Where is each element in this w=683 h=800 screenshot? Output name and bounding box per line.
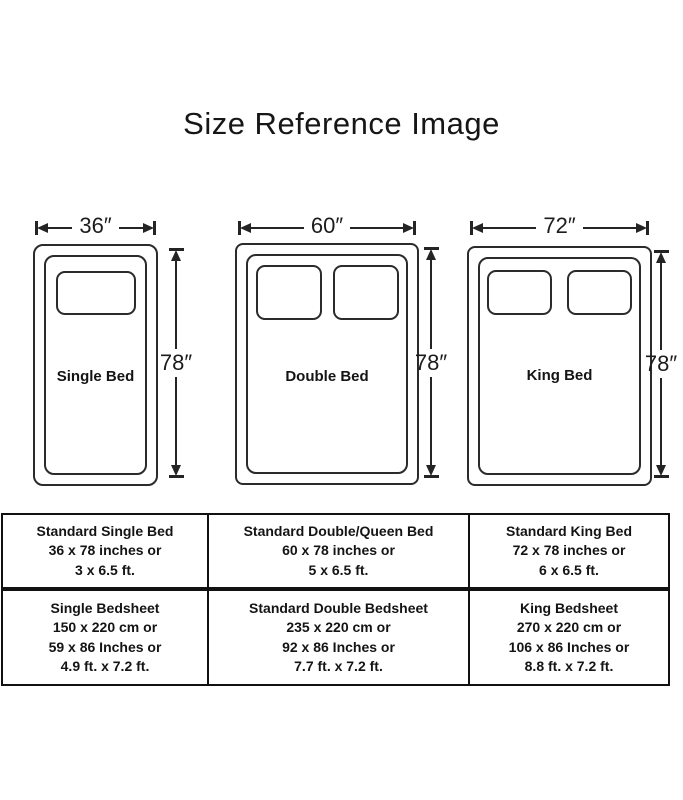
- table-cell-standard-double: Standard Double/Queen Bed 60 x 78 inches…: [208, 514, 469, 589]
- double-bed-label: Double Bed: [248, 368, 406, 385]
- table-cell-line: 150 x 220 cm or: [5, 618, 205, 638]
- table-cell-line: Standard Double/Queen Bed: [211, 522, 466, 542]
- width-dimension-arrow-single: 36″: [35, 215, 156, 241]
- width-dimension-arrow-double: 60″: [238, 215, 416, 241]
- table-cell-line: 6 x 6.5 ft.: [472, 561, 666, 581]
- king-bed-outline: King Bed: [467, 246, 652, 486]
- table-cell-king-bedsheet: King Bedsheet 270 x 220 cm or 106 x 86 I…: [469, 589, 669, 685]
- double-bed-outline: Double Bed: [235, 243, 419, 485]
- table-cell-line: 106 x 86 Inches or: [472, 638, 666, 658]
- dimension-tick: [153, 221, 156, 235]
- double-bed-mattress: Double Bed: [246, 254, 408, 474]
- arrow-up-icon: [171, 250, 181, 261]
- table-cell-double-bedsheet: Standard Double Bedsheet 235 x 220 cm or…: [208, 589, 469, 685]
- table-cell-line: 4.9 ft. x 7.2 ft.: [5, 657, 205, 677]
- width-dimension-label: 72″: [536, 213, 582, 239]
- single-bed-mattress: Single Bed: [44, 255, 147, 475]
- dimension-line: [660, 378, 663, 465]
- single-bed-outline: Single Bed: [33, 244, 158, 486]
- table-cell-line: Single Bedsheet: [5, 599, 205, 619]
- dimension-line: [660, 263, 663, 350]
- height-dimension-label: 78″: [160, 349, 192, 377]
- dimension-line: [251, 227, 304, 230]
- pillow-row: [46, 257, 145, 315]
- table-cell-line: 59 x 86 Inches or: [5, 638, 205, 658]
- page-title: Size Reference Image: [0, 106, 683, 142]
- table-row-bedsheets: Single Bedsheet 150 x 220 cm or 59 x 86 …: [2, 589, 669, 685]
- king-bed-label: King Bed: [480, 367, 639, 384]
- dimension-line: [430, 377, 433, 466]
- dimension-line: [583, 227, 636, 230]
- dimension-tick: [646, 221, 649, 235]
- table-cell-line: 72 x 78 inches or: [472, 541, 666, 561]
- dimension-line: [175, 261, 178, 349]
- table-row-standard-beds: Standard Single Bed 36 x 78 inches or 3 …: [2, 514, 669, 589]
- height-dimension-label: 78″: [415, 349, 447, 377]
- pillow-row: [248, 256, 406, 320]
- table-cell-standard-single: Standard Single Bed 36 x 78 inches or 3 …: [2, 514, 208, 589]
- table-cell-line: Standard King Bed: [472, 522, 666, 542]
- height-dimension-arrow-single: 78″: [165, 248, 187, 478]
- table-cell-single-bedsheet: Single Bedsheet 150 x 220 cm or 59 x 86 …: [2, 589, 208, 685]
- dimension-line: [350, 227, 403, 230]
- table-cell-line: Standard Single Bed: [5, 522, 205, 542]
- table-cell-line: 92 x 86 Inches or: [211, 638, 466, 658]
- pillow: [56, 271, 136, 315]
- arrow-up-icon: [426, 249, 436, 260]
- table-cell-line: 5 x 6.5 ft.: [211, 561, 466, 581]
- dimension-line: [483, 227, 536, 230]
- pillow-row: [480, 259, 639, 315]
- height-dimension-label: 78″: [645, 350, 677, 378]
- table-cell-line: 36 x 78 inches or: [5, 541, 205, 561]
- dimension-line: [119, 227, 143, 230]
- pillow: [333, 265, 399, 320]
- table-cell-standard-king: Standard King Bed 72 x 78 inches or 6 x …: [469, 514, 669, 589]
- table-cell-line: 270 x 220 cm or: [472, 618, 666, 638]
- dimension-tick: [424, 475, 439, 478]
- table-cell-line: 60 x 78 inches or: [211, 541, 466, 561]
- pillow: [567, 270, 632, 315]
- arrow-left-icon: [472, 223, 483, 233]
- size-reference-diagram: Size Reference Image 36″ Single Bed 78″ …: [0, 0, 683, 800]
- width-dimension-arrow-king: 72″: [470, 215, 649, 241]
- table-cell-line: Standard Double Bedsheet: [211, 599, 466, 619]
- width-dimension-label: 60″: [304, 213, 350, 239]
- king-bed-mattress: King Bed: [478, 257, 641, 475]
- table-cell-line: 8.8 ft. x 7.2 ft.: [472, 657, 666, 677]
- height-dimension-arrow-king: 78″: [650, 250, 672, 478]
- pillow: [487, 270, 552, 315]
- table-cell-line: 235 x 220 cm or: [211, 618, 466, 638]
- dimension-tick: [413, 221, 416, 235]
- table-cell-line: King Bedsheet: [472, 599, 666, 619]
- size-table: Standard Single Bed 36 x 78 inches or 3 …: [1, 513, 670, 686]
- dimension-tick: [169, 475, 184, 478]
- dimension-line: [430, 260, 433, 349]
- arrow-left-icon: [240, 223, 251, 233]
- table-cell-line: 7.7 ft. x 7.2 ft.: [211, 657, 466, 677]
- table-cell-line: 3 x 6.5 ft.: [5, 561, 205, 581]
- width-dimension-label: 36″: [72, 213, 118, 239]
- dimension-line: [175, 377, 178, 465]
- single-bed-label: Single Bed: [46, 368, 145, 385]
- arrow-left-icon: [37, 223, 48, 233]
- pillow: [256, 265, 322, 320]
- dimension-tick: [654, 475, 669, 478]
- arrow-up-icon: [656, 252, 666, 263]
- height-dimension-arrow-double: 78″: [420, 247, 442, 478]
- dimension-line: [48, 227, 72, 230]
